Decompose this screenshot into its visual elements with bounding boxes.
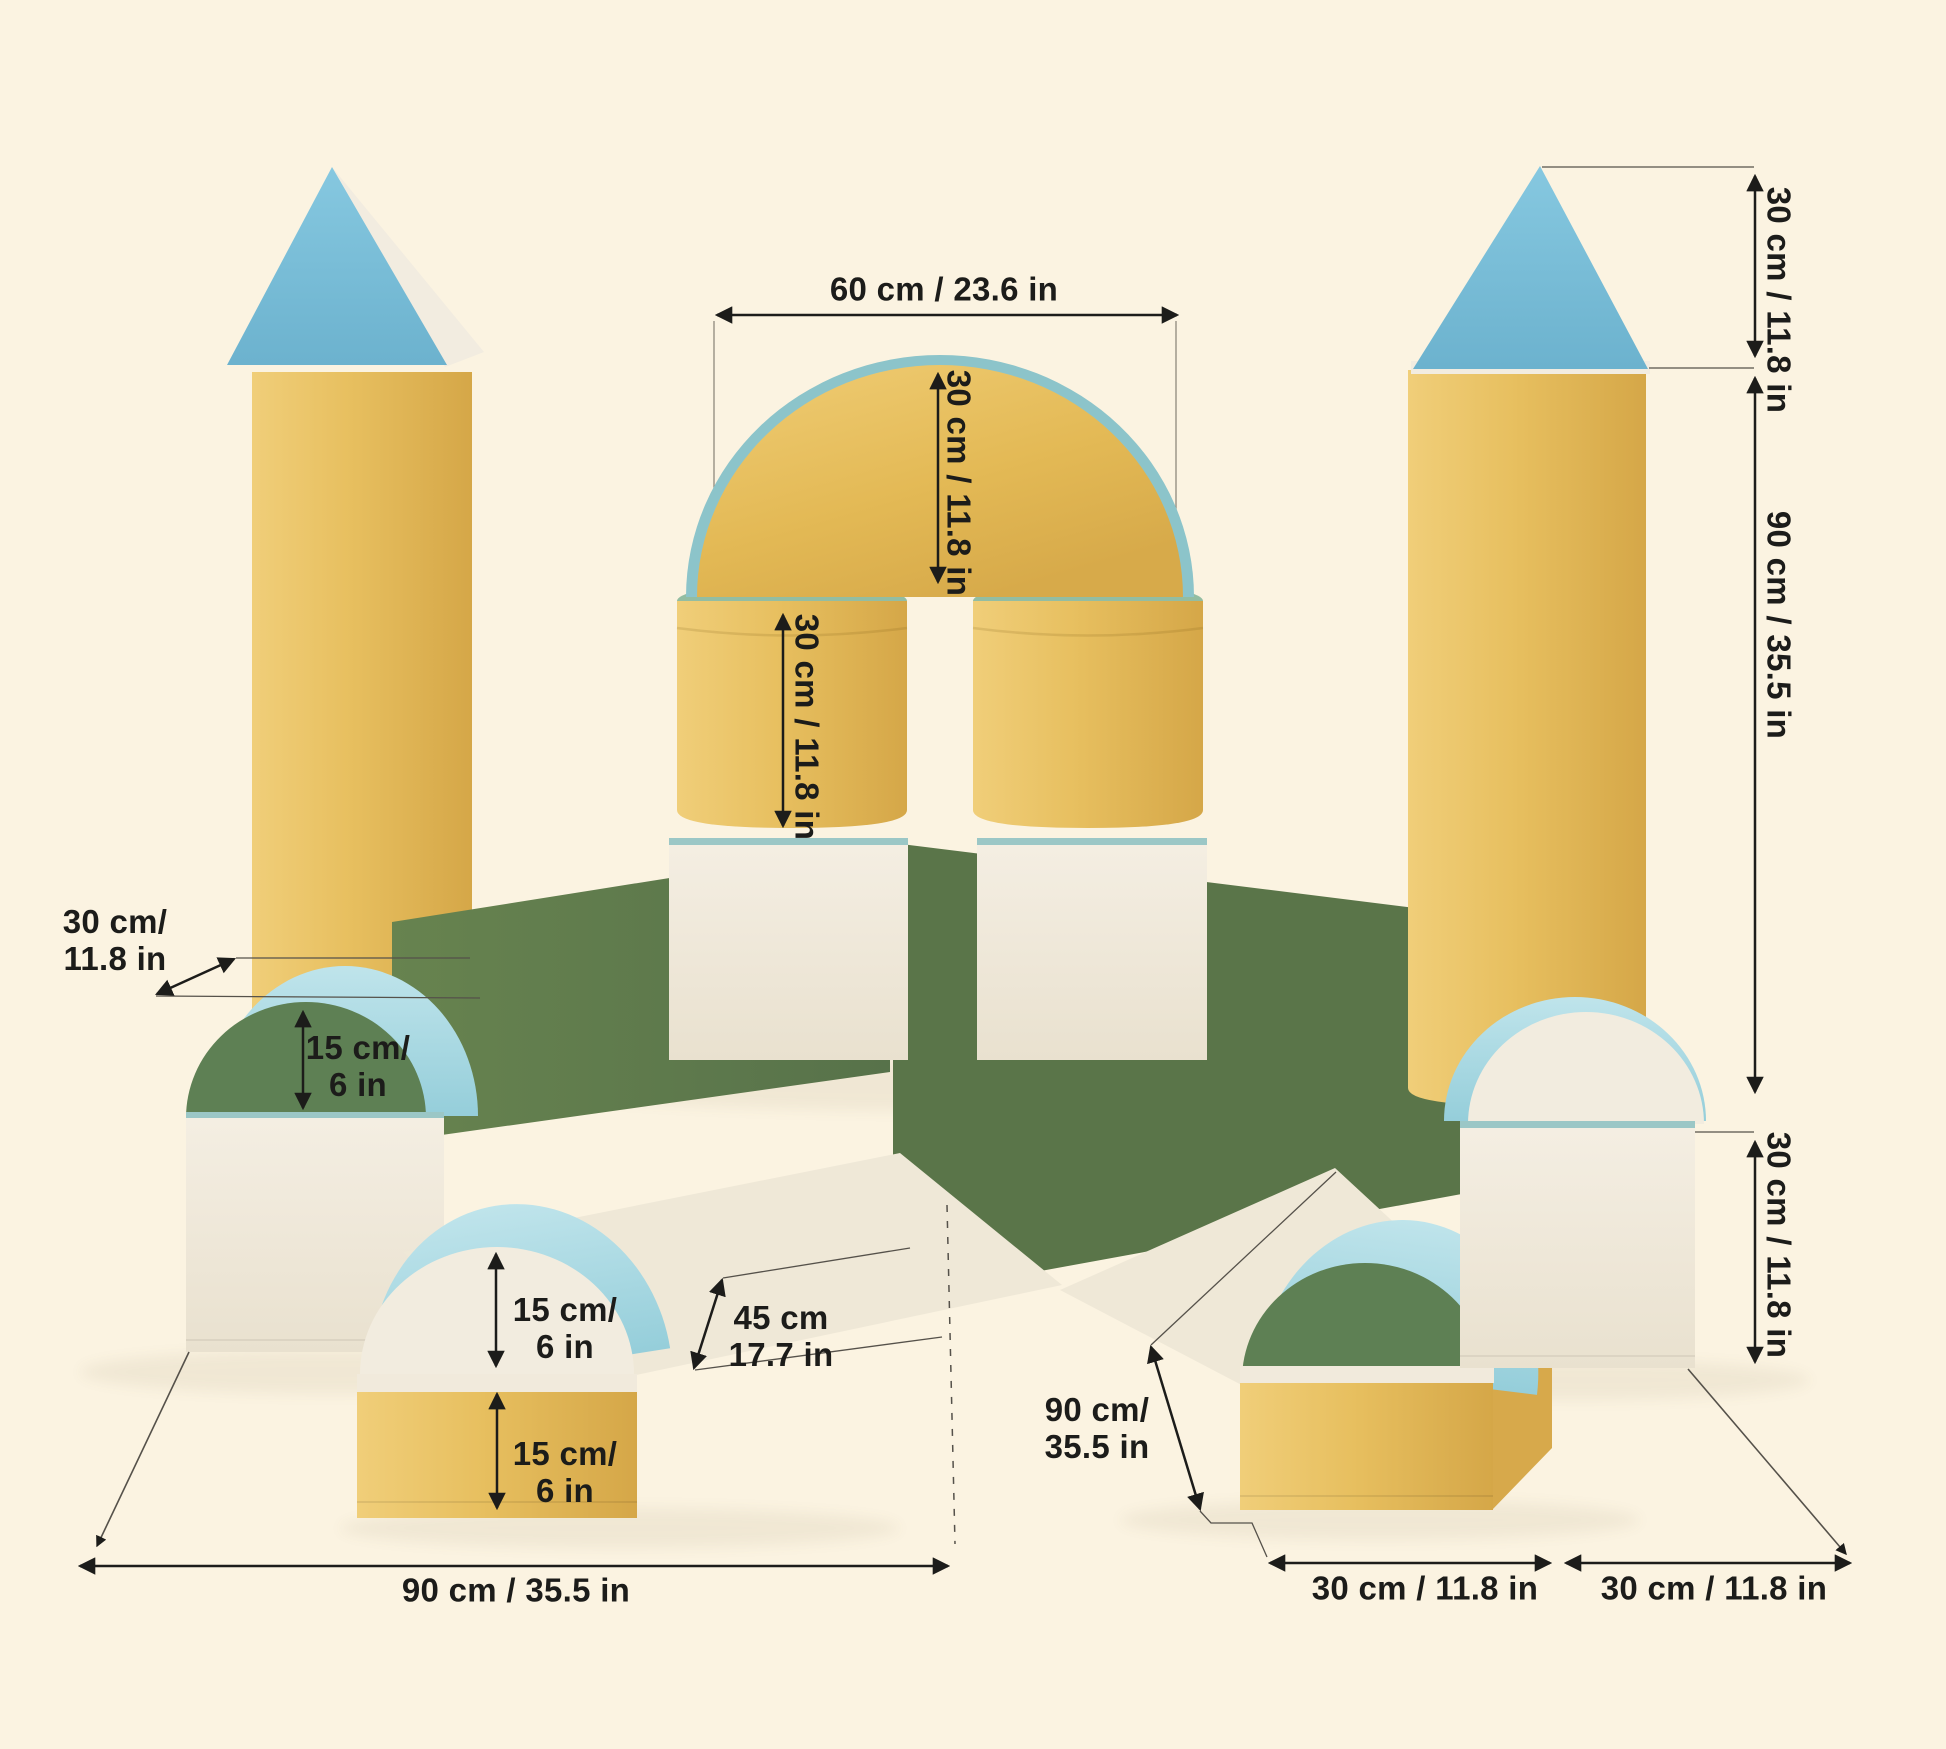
dim-floor-depth-left: 30 cm / 11.8 in — [1312, 1571, 1538, 1608]
dim-ramp-length: 45 cm 17.7 in — [729, 1300, 834, 1374]
right-yellow-block — [1240, 1383, 1493, 1510]
dim-tower-height: 90 cm / 35.5 in — [1760, 511, 1797, 739]
castle-blocks-scene — [0, 0, 1946, 1749]
right-slab-front — [1240, 1366, 1494, 1383]
dim-arch-width: 60 cm / 23.6 in — [830, 272, 1058, 309]
dim-ramp-halfcyl-height: 15 cm/ 6 in — [513, 1292, 618, 1366]
dim-right-cube-height: 30 cm / 11.8 in — [1760, 1132, 1797, 1358]
right-tower-roof — [1413, 166, 1648, 369]
dim-cone-height: 30 cm / 11.8 in — [1760, 187, 1797, 413]
ramp-slab-front — [357, 1374, 637, 1392]
dim-arch-height: 30 cm / 11.8 in — [940, 370, 977, 596]
dim-pillar-height: 30 cm / 11.8 in — [788, 614, 825, 840]
arrow-right-wing — [1151, 1347, 1200, 1509]
product-dimension-diagram: 60 cm / 23.6 in 30 cm / 11.8 in 30 cm / … — [0, 0, 1946, 1749]
dim-left-halfcyl-depth: 30 cm/ 11.8 in — [63, 904, 168, 978]
right-tower — [1408, 166, 1650, 1106]
left-tower-roof — [227, 167, 447, 365]
dim-floor-depth-right: 30 cm / 11.8 in — [1601, 1571, 1827, 1608]
arch-pillars — [677, 583, 1203, 828]
dim-left-wing-length: 90 cm / 35.5 in — [402, 1573, 630, 1610]
right-cube-group — [1444, 997, 1706, 1368]
dim-left-halfcyl-height: 15 cm/ 6 in — [306, 1030, 411, 1104]
arrow-left-depth — [157, 959, 234, 994]
dim-ramp-block-height: 15 cm/ 6 in — [513, 1436, 618, 1510]
right-tower-cylinder — [1408, 370, 1646, 1106]
dim-right-wing-length: 90 cm/ 35.5 in — [1045, 1392, 1150, 1466]
